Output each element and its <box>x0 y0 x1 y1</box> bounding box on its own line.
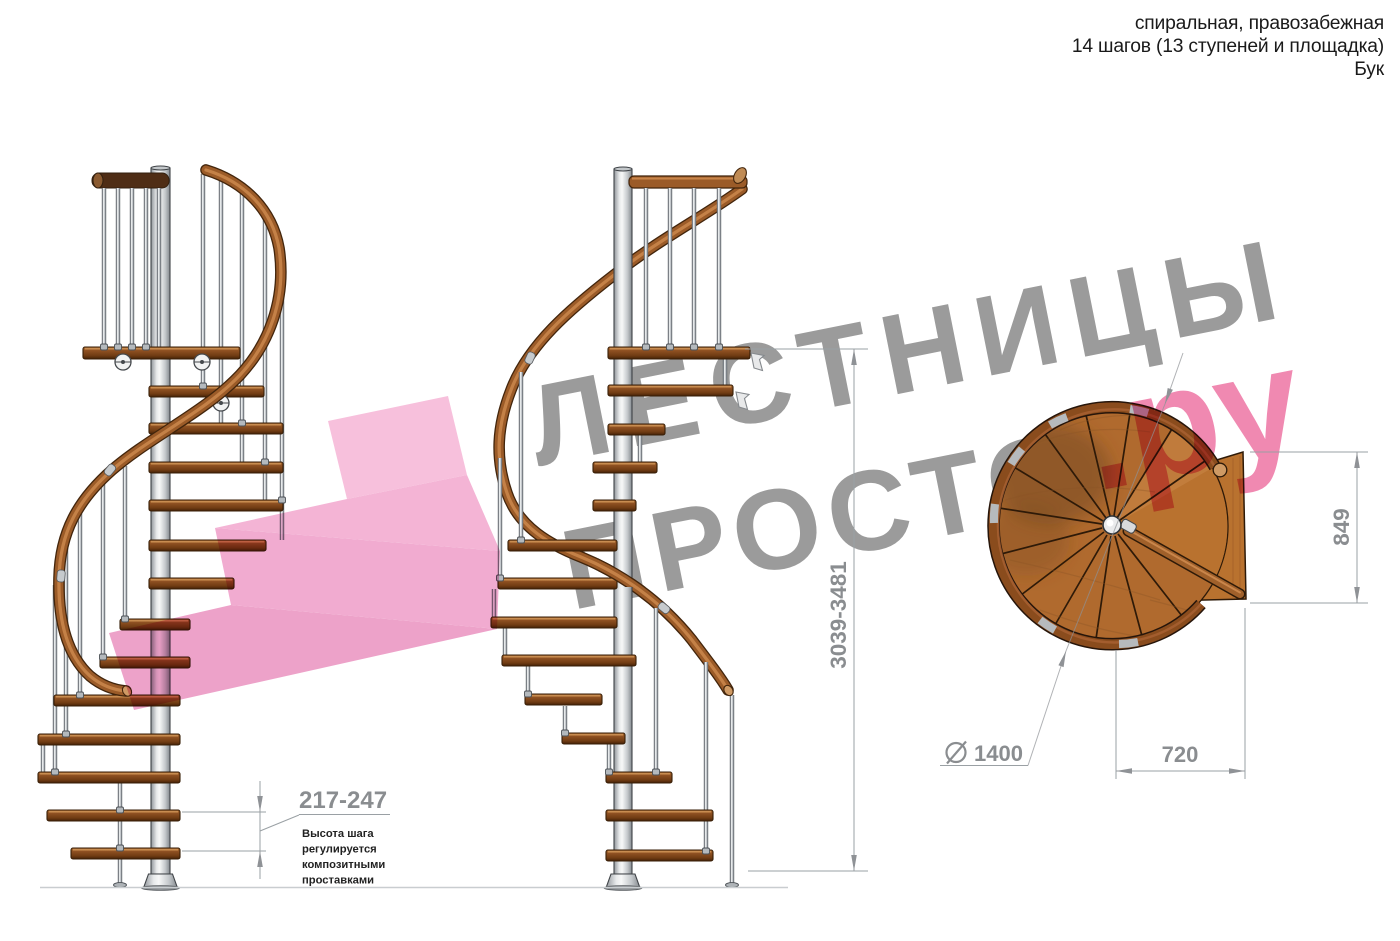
svg-text:спиральная, правозабежная: спиральная, правозабежная <box>1135 13 1384 34</box>
svg-text:14 шагов (13 ступеней и площад: 14 шагов (13 ступеней и площадка) <box>1072 36 1384 57</box>
svg-text:217-247: 217-247 <box>299 787 387 814</box>
svg-text:Бук: Бук <box>1354 59 1384 80</box>
svg-text:проставками: проставками <box>302 875 374 887</box>
svg-text:720: 720 <box>1162 742 1199 767</box>
svg-text:композитными: композитными <box>302 859 385 871</box>
svg-text:3039-3481: 3039-3481 <box>826 561 851 669</box>
svg-text:Высота шага: Высота шага <box>302 828 374 840</box>
svg-text:регулируется: регулируется <box>302 844 377 856</box>
svg-text:849: 849 <box>1329 508 1354 546</box>
svg-text:1400: 1400 <box>974 741 1023 766</box>
